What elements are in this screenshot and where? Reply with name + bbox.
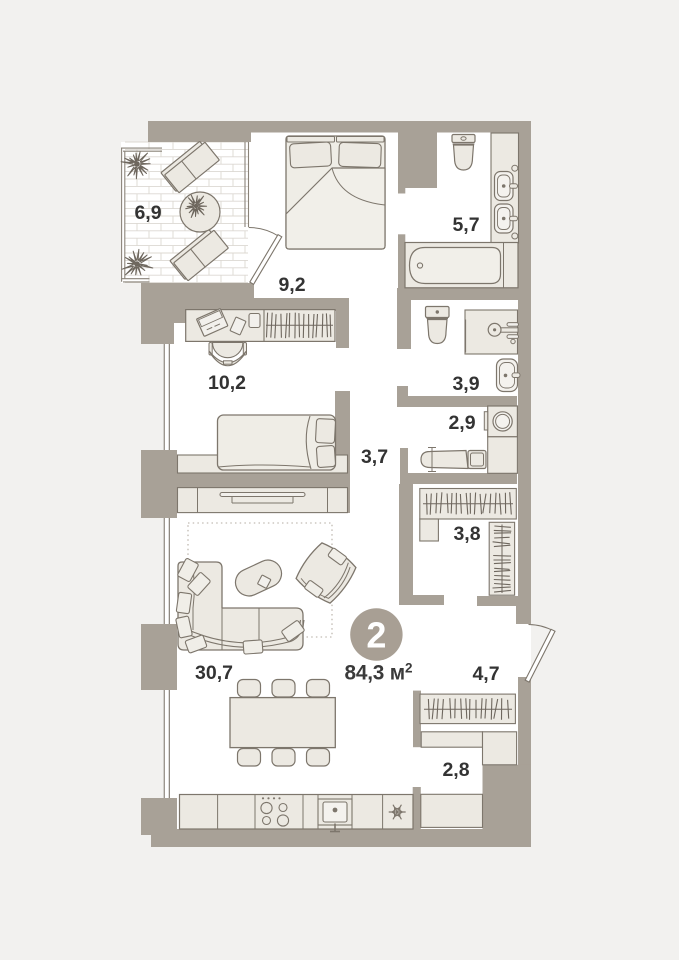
svg-text:10,2: 10,2	[208, 372, 246, 394]
svg-text:30,7: 30,7	[195, 662, 233, 684]
svg-text:2,8: 2,8	[442, 759, 469, 781]
svg-text:2: 2	[366, 615, 386, 656]
svg-text:3,8: 3,8	[453, 523, 480, 545]
svg-text:6,9: 6,9	[134, 202, 161, 224]
svg-text:5,7: 5,7	[452, 214, 479, 236]
svg-text:2,9: 2,9	[448, 412, 475, 434]
svg-text:3,7: 3,7	[361, 446, 388, 468]
svg-text:9,2: 9,2	[278, 274, 305, 296]
svg-text:84,3 м2: 84,3 м2	[345, 661, 413, 685]
svg-text:4,7: 4,7	[472, 663, 499, 685]
svg-text:3,9: 3,9	[452, 373, 479, 395]
